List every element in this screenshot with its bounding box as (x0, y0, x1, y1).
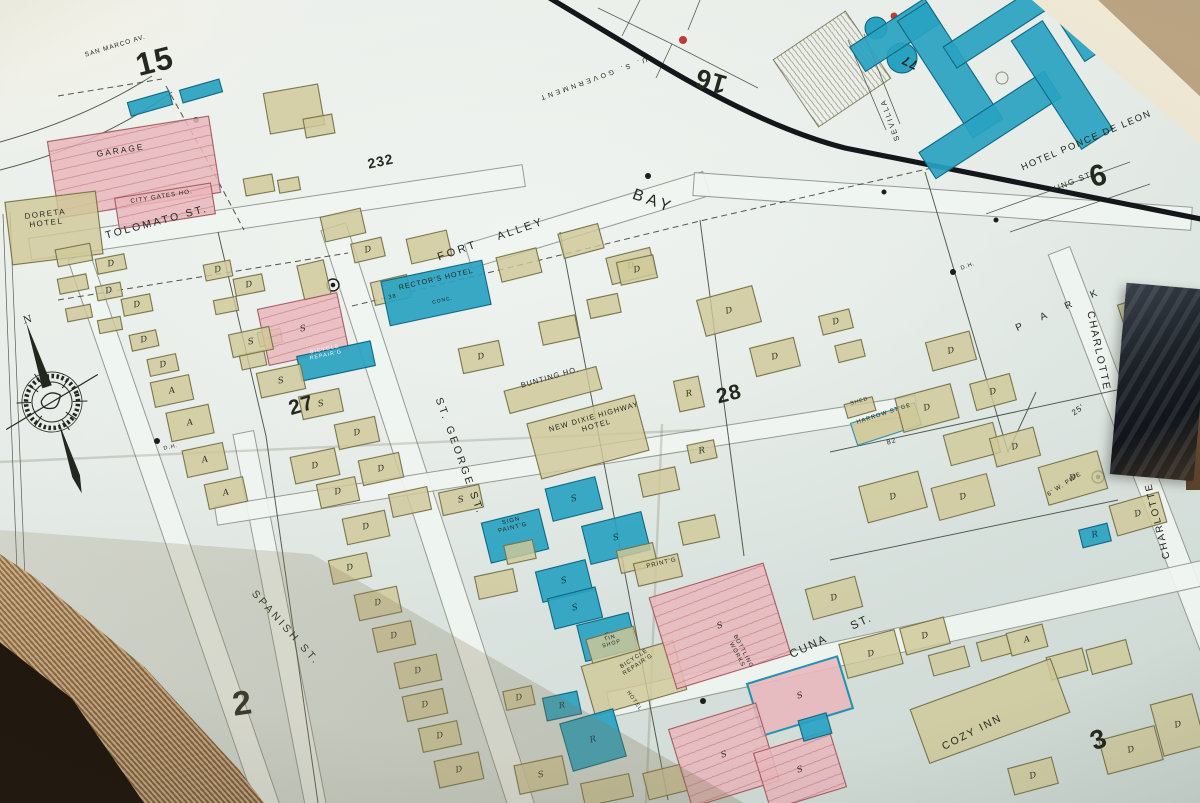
sheet-number-3: 3 (1086, 723, 1112, 758)
doreta-hotel-label: DORETA HOTEL (24, 207, 68, 230)
labels-layer: 15 232 27 28 2 3 16 77 6 SAN MARCO AV. T… (0, 0, 1200, 803)
sheet-number-15: 15 (132, 39, 177, 84)
dim-25-note: 25' (1070, 402, 1086, 417)
street-label-king: KING ST. (1050, 169, 1095, 195)
street-label-tolomato: TOLOMATO ST. (104, 203, 209, 242)
lot-82-note: 82 (886, 437, 898, 448)
block-number-27: 27 (286, 391, 317, 421)
sheet-number-2: 2 (230, 683, 255, 724)
sign-painting-label: SIGN PAINT'G (496, 515, 528, 536)
double-hydrant-2: D.H. (960, 261, 976, 272)
bunting-house-label: BUNTING HO. (520, 365, 580, 390)
rectors-hotel-label: RECTOR'S HOTEL (398, 267, 474, 292)
tin-shop-label: TIN SHOP (600, 633, 622, 650)
dark-photo-object (1110, 283, 1200, 482)
block-number-28: 28 (714, 380, 744, 410)
printing-label: PRINT'G (646, 557, 678, 571)
bicycle-repair-label: BICYCLE REPAIR'G (618, 647, 654, 677)
sheet-number-16: 16 (691, 61, 730, 100)
conc-note: CONC. (432, 296, 454, 306)
street-label-st-george: ST. GEORGE ST. (433, 396, 487, 517)
street-label-cuna: CUNA ST. (788, 612, 875, 662)
street-label-spanish: SPANISH ST. (249, 588, 322, 668)
compass-north-label: N (22, 313, 34, 327)
bottling-works-label: BOTTLING WORKS (725, 634, 754, 673)
harrow-storage-label: HARROW ST'GE (856, 402, 912, 426)
block-number-77: 77 (899, 52, 920, 72)
city-gates-hotel-label: CITY GATES HO. (130, 188, 193, 205)
sheet-number-232: 232 (366, 151, 395, 172)
garage-label: GARAGE (96, 142, 145, 159)
bicycle-repair-blue-label: BICYCLE REPAIR'G (308, 343, 343, 362)
street-label-fort-alley: FORT ALLEY (436, 215, 546, 263)
lot-38-note: 38 (388, 293, 397, 301)
new-dixie-highway-hotel-label: NEW DIXIE HIGHWAY HOTEL (548, 400, 642, 442)
double-hydrant-1: D.H. (163, 443, 179, 452)
us-government-label: U. S. GOVERNMENT (537, 54, 648, 101)
street-label-charlotte-north: CHARLOTTE (1084, 310, 1113, 392)
street-label-sevilla: SEVILLA (879, 97, 902, 142)
street-label-bay: BAY (630, 186, 677, 218)
street-label-charlotte-south: CHARLOTTE (1143, 481, 1173, 560)
shed-label: SHED (850, 397, 869, 408)
water-pipe-note: 6' W. PIPE (1046, 471, 1083, 498)
hotel-vertical-label: HOTEL (625, 690, 643, 712)
sanborn-map-photo: DDDDDDDAAAADDDDDDDSSSSDDDDDRRDDDDDDRDDSS… (0, 0, 1200, 803)
cozy-inn-label: COZY INN (940, 712, 1004, 753)
